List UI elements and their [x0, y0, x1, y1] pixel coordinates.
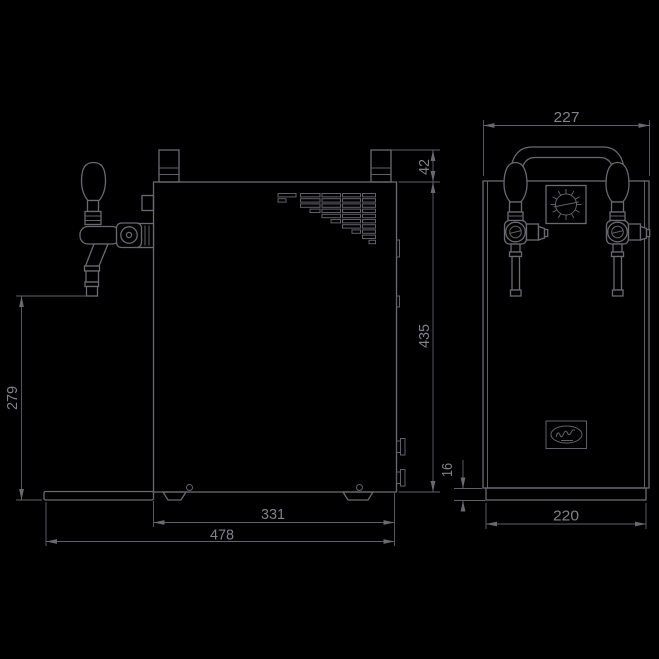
dim-base-width: 220 [553, 508, 579, 525]
drawing-canvas: 42 435 279 331 478 [0, 0, 659, 659]
dim-overall-depth: 478 [210, 527, 234, 544]
tap-spout [85, 244, 109, 296]
front-tap-right [606, 163, 650, 297]
screw-icon [187, 485, 193, 491]
side-tap-assembly [80, 163, 154, 297]
hinge-bump [397, 296, 400, 307]
thermostat-dial-icon [546, 186, 586, 224]
dim-connector-height: 42 [416, 159, 433, 175]
side-view [44, 150, 405, 500]
dim-base-height: 16 [439, 463, 456, 477]
tap-spout [510, 244, 522, 296]
dim-body-height: 435 [416, 324, 433, 348]
tap-handle [606, 163, 629, 203]
top-connector-right [371, 150, 391, 182]
tap-barrel [80, 227, 120, 245]
front-base [486, 488, 646, 500]
hinge-bump [397, 240, 400, 257]
foot [163, 492, 186, 500]
tap-handle [82, 163, 106, 201]
front-face-fitting [142, 196, 154, 211]
drain-fitting-cap [401, 439, 406, 456]
tap-handle-stem [88, 201, 99, 212]
back-edge-fittings [397, 240, 406, 486]
foot [343, 492, 373, 500]
technical-drawing: 42 435 279 331 478 [0, 0, 659, 659]
top-connector-left [159, 150, 179, 182]
screw-icon [357, 485, 363, 491]
dim-tap-to-ground: 279 [4, 386, 21, 410]
brand-logo-icon [546, 421, 587, 449]
vent-grille [278, 194, 376, 244]
tap-spout [612, 244, 624, 296]
tap-handle [504, 163, 527, 203]
front-view [483, 147, 650, 500]
tap-side-fitting [629, 224, 641, 240]
front-tap-left [504, 163, 548, 297]
dim-overall-width: 227 [554, 109, 580, 126]
tap-side-fitting [527, 224, 539, 240]
tap-handle-collar [85, 212, 101, 225]
dim-body-depth: 331 [261, 506, 285, 523]
drain-fitting-cap [401, 470, 406, 487]
drip-tray [44, 492, 154, 501]
